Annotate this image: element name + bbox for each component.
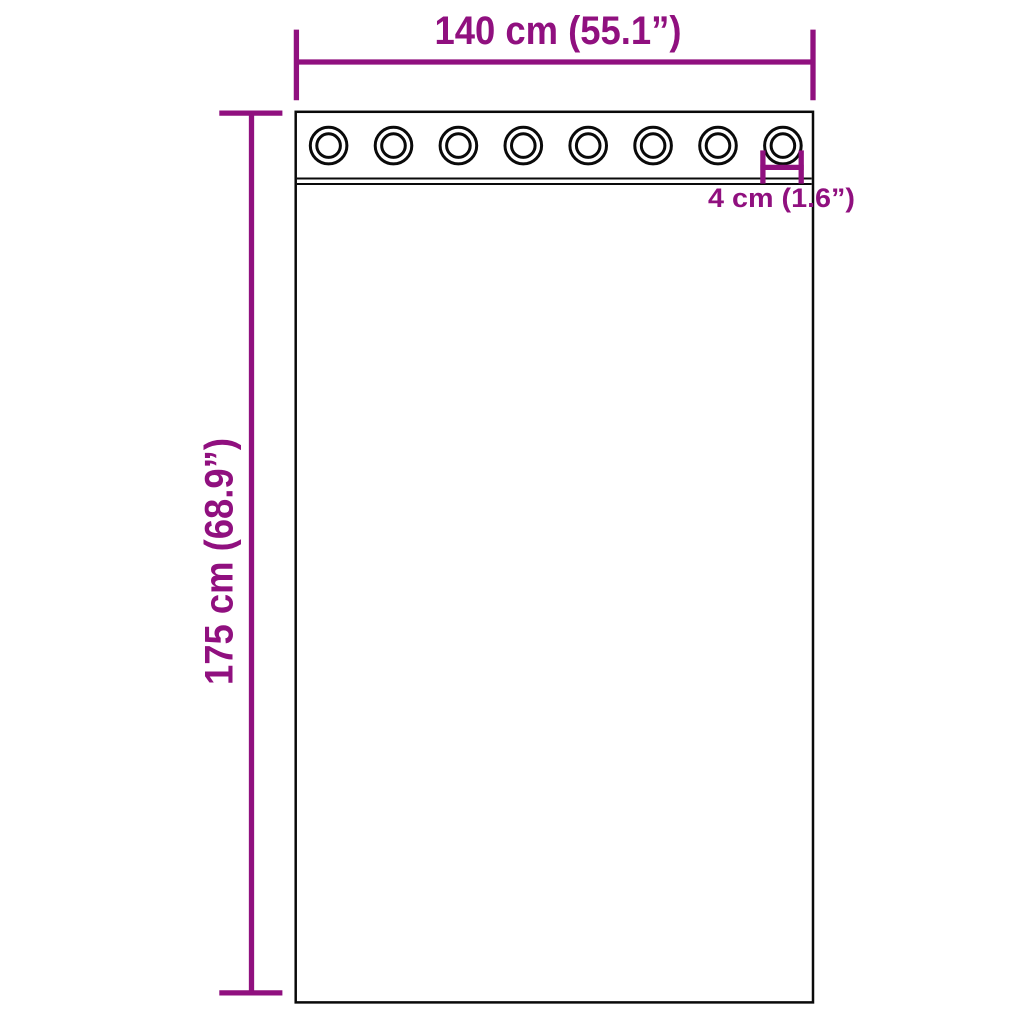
svg-text:140 cm (55.1”): 140 cm (55.1”) bbox=[435, 9, 682, 53]
svg-text:175 cm (68.9”): 175 cm (68.9”) bbox=[198, 438, 242, 685]
svg-text:4 cm (1.6”): 4 cm (1.6”) bbox=[708, 183, 855, 213]
